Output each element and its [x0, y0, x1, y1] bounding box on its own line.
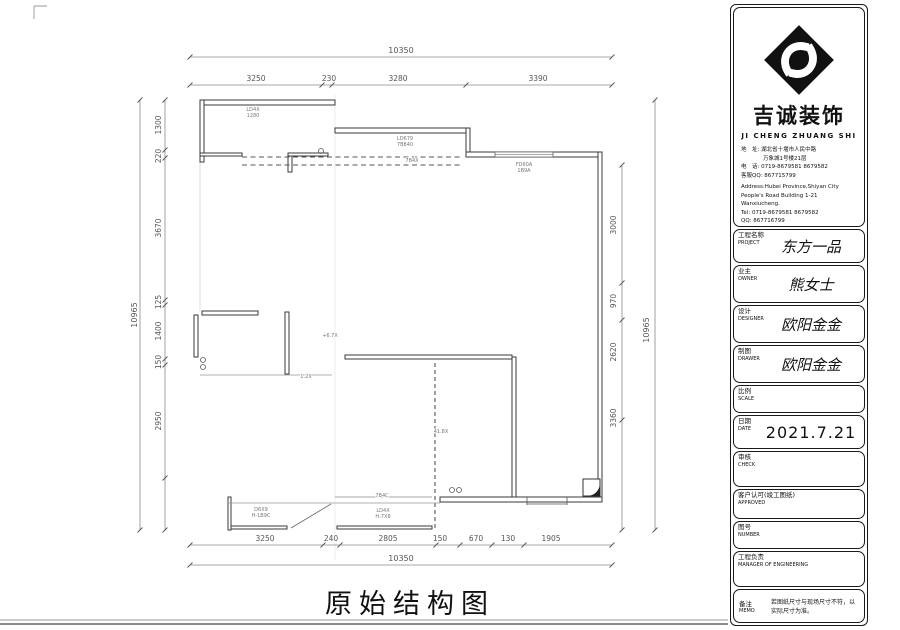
- sheet-corner-mark: [34, 6, 47, 19]
- contact-line: Wanxiucheng.: [741, 200, 857, 209]
- field-value: [734, 386, 864, 412]
- field-number: 图号NUMBER: [733, 521, 865, 549]
- beam-label: 7B4C: [375, 493, 389, 499]
- field-value: [734, 490, 864, 518]
- dim-bottom: 240: [324, 534, 339, 543]
- field-label-en: MEMO: [739, 608, 769, 614]
- dim-bottom: 670: [469, 534, 484, 543]
- dim-top: 3250: [246, 74, 265, 83]
- dim-top-total: 10350: [388, 46, 413, 55]
- dim-bottom: 3250: [255, 534, 274, 543]
- company-header: 吉诚装饰 JI CHENG ZHUANG SHI 地 址: 湖北省十堰市人民中路…: [733, 7, 865, 227]
- contact-line: 地 址: 湖北省十堰市人民中路: [741, 146, 857, 155]
- field-scale: 比例SCALE: [733, 385, 865, 413]
- company-name-cn: 吉诚装饰: [753, 100, 845, 130]
- dim-top: 3280: [388, 74, 407, 83]
- field-value: [734, 522, 864, 548]
- window-label: H-1B9C: [252, 513, 271, 519]
- field-drawer: 制图DRAWER 欧阳金金: [733, 345, 865, 383]
- dim-bottom-total: 10350: [388, 554, 413, 563]
- field-value: 欧阳金金: [734, 306, 864, 342]
- contact-line: 万象城1号楼21层: [741, 155, 857, 164]
- contact-line: 客服QQ: 867715799: [741, 172, 857, 181]
- company-logo-icon: [763, 24, 835, 96]
- level-mark: 1.2X: [300, 374, 312, 380]
- field-owner: 业主OWNER 熊女士: [733, 265, 865, 303]
- dim-left: 3670: [154, 218, 163, 237]
- field-label-cn: 备注: [739, 598, 769, 608]
- field-approved: 客户认可(竣工图纸)APPROVED: [733, 489, 865, 519]
- field-manager: 工程负责MANAGER OF ENGINEERING: [733, 551, 865, 587]
- company-name-en: JI CHENG ZHUANG SHI: [741, 132, 856, 140]
- field-date: 日期DATE 2021.7.21: [733, 415, 865, 449]
- memo-text: 若图纸尺寸与现场尺寸不符，以实际尺寸为准。: [769, 596, 864, 616]
- dim-top: 230: [322, 74, 337, 83]
- dim-left: 2950: [154, 411, 163, 430]
- contact-line: Address:Hubei Province,Shiyan City: [741, 183, 857, 192]
- beam-label: 7B840: [397, 142, 413, 148]
- dim-left: 150: [154, 355, 163, 370]
- dim-right: 3360: [609, 408, 618, 427]
- dim-bottom: 2805: [378, 534, 397, 543]
- dim-bottom: 1905: [541, 534, 560, 543]
- floor-plan-canvas: 10350 3250 230 3280 3390 3250 240 2805 1…: [0, 0, 730, 630]
- door-swing-line: [291, 504, 331, 528]
- title-block: 吉诚装饰 JI CHENG ZHUANG SHI 地 址: 湖北省十堰市人民中路…: [730, 4, 868, 626]
- field-value: 2021.7.21: [734, 416, 864, 448]
- beam-dashed-lines: [242, 157, 463, 528]
- field-value: 东方一品: [734, 230, 864, 262]
- field-designer: 设计DESIGNER 欧阳金金: [733, 305, 865, 343]
- field-value: 欧阳金金: [734, 346, 864, 382]
- beam-label: 7B4X: [405, 158, 419, 164]
- level-mark: +6.7X: [322, 333, 338, 339]
- field-value: 熊女士: [734, 266, 864, 302]
- field-project: 工程名称PROJECT 东方一品: [733, 229, 865, 263]
- drawing-sheet: 10350 3250 230 3280 3390 3250 240 2805 1…: [0, 0, 900, 630]
- drawing-title: 原始结构图: [295, 582, 525, 621]
- beam-label: 1B9A: [517, 168, 531, 174]
- window: [495, 152, 553, 157]
- dim-right: 970: [609, 294, 618, 309]
- dim-left: 125: [154, 295, 163, 310]
- contact-line: Tel: 0719-8679581 8679582: [741, 209, 857, 218]
- level-mark: 41.8X: [434, 429, 449, 435]
- dim-left: 220: [154, 149, 163, 164]
- contact-line: People's Road Building 1-21: [741, 192, 857, 201]
- beam-label: 1280: [247, 113, 260, 119]
- dim-bottom: 150: [433, 534, 448, 543]
- company-contact: 地 址: 湖北省十堰市人民中路 万象城1号楼21层 电 话: 0719-8679…: [734, 140, 864, 226]
- field-check: 审核CHECK: [733, 451, 865, 487]
- contact-line: 电 话: 0719-8679581 8679582: [741, 163, 857, 172]
- field-memo: 备注 MEMO 若图纸尺寸与现场尺寸不符，以实际尺寸为准。: [733, 589, 865, 623]
- dim-top: 3390: [528, 74, 547, 83]
- dim-right-total: 10965: [642, 317, 651, 342]
- pipe-circles: [201, 149, 462, 493]
- dim-right: 2620: [609, 342, 618, 361]
- dim-left: 1400: [154, 321, 163, 340]
- window-label: H-7X8: [375, 514, 390, 520]
- field-value: [734, 552, 864, 586]
- dim-bottom: 130: [501, 534, 516, 543]
- flue-symbol: [583, 479, 600, 496]
- dim-right: 3000: [609, 215, 618, 234]
- dim-left-total: 10965: [130, 302, 139, 327]
- dim-left: 1300: [154, 115, 163, 134]
- field-value: [734, 452, 864, 486]
- contact-line: QQ: 867716799: [741, 217, 857, 226]
